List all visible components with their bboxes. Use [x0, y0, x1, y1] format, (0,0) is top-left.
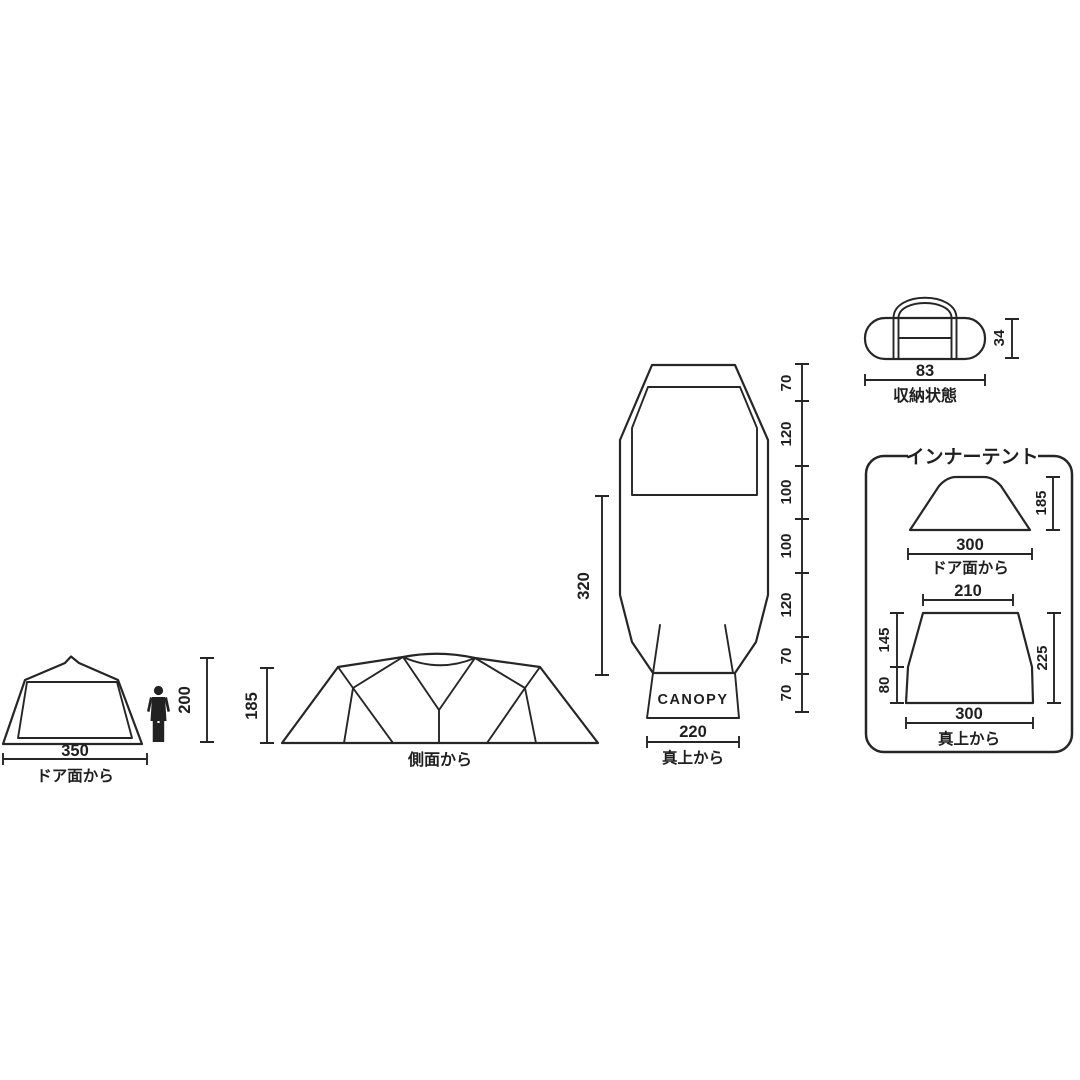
- inner-top-upper-depth-value: 145: [876, 627, 893, 652]
- segment-value-1: 120: [778, 421, 795, 446]
- packed-view-label: 収納状態: [893, 386, 957, 405]
- side-tent-outline: [282, 654, 598, 743]
- segment-value-4: 120: [778, 592, 795, 617]
- top-inner-length-dim-line: [595, 496, 609, 675]
- side-height-dim-line: [260, 668, 274, 743]
- top-view: CANOPY 320 220 真上から 70 120 100 100 120 7…: [575, 364, 809, 767]
- segment-value-5: 70: [778, 648, 795, 665]
- top-inner-length-value: 320: [575, 572, 593, 600]
- side-tent-frame-poles: [338, 657, 540, 743]
- inner-front-width-value: 300: [956, 536, 984, 554]
- top-bottom-width-value: 220: [679, 723, 707, 741]
- segment-value-2: 100: [778, 479, 795, 504]
- packed-bag-handle: [894, 298, 957, 318]
- front-view: 350 ドア面から 200: [3, 657, 214, 786]
- side-tent-ridge-arc: [403, 657, 475, 665]
- inner-tent-top-outline: [906, 613, 1033, 703]
- inner-tent-title: インナーテント: [905, 447, 1038, 468]
- canopy-pole-lines: [653, 625, 733, 673]
- inner-front-height-value: 185: [1033, 490, 1050, 515]
- person-figure: [147, 686, 170, 742]
- canopy-label: CANOPY: [657, 692, 728, 708]
- inner-top-total-depth-value: 225: [1034, 645, 1051, 670]
- inner-tent-panel: インナーテント 185 300 ドア面から 210 145 80 225 300…: [866, 445, 1072, 752]
- inner-top-topwidth-value: 210: [954, 582, 982, 600]
- side-view-label: 側面から: [407, 750, 472, 769]
- segment-value-6: 70: [778, 685, 795, 702]
- packed-height-value: 34: [991, 329, 1008, 346]
- inner-front-view-label: ドア面から: [931, 559, 1009, 577]
- front-width-value: 350: [61, 742, 89, 760]
- front-tent-door-panel: [18, 682, 132, 738]
- inner-top-bottomwidth-value: 300: [955, 705, 983, 723]
- side-view: 185 側面から: [243, 654, 598, 769]
- packed-view: 34 83 収納状態: [865, 298, 1019, 405]
- person-height-value: 200: [176, 686, 194, 714]
- top-view-inner-tent-outline: [632, 387, 757, 495]
- inner-tent-front-outline: [910, 477, 1030, 530]
- tent-dimension-diagram: 350 ドア面から 200 185 側面から CANOPY 320 220 真上…: [0, 0, 1080, 1080]
- inner-top-lower-depth-value: 80: [876, 677, 893, 694]
- person-head: [154, 686, 163, 695]
- person-height-dim-line: [200, 658, 214, 742]
- segment-value-3: 100: [778, 533, 795, 558]
- inner-tent-front-view: 185 300 ドア面から: [908, 477, 1060, 577]
- top-view-outer-outline: [620, 365, 768, 673]
- diagram-svg: 350 ドア面から 200 185 側面から CANOPY 320 220 真上…: [0, 0, 1080, 1080]
- side-height-value: 185: [243, 692, 261, 720]
- inner-top-view-label: 真上から: [938, 729, 1000, 748]
- inner-tent-top-view: 210 145 80 225 300 真上から: [876, 582, 1061, 748]
- top-segment-dim-line: [795, 364, 809, 712]
- top-view-label: 真上から: [662, 748, 724, 767]
- segment-value-0: 70: [778, 375, 795, 392]
- packed-width-value: 83: [916, 362, 934, 380]
- front-view-label: ドア面から: [36, 767, 114, 785]
